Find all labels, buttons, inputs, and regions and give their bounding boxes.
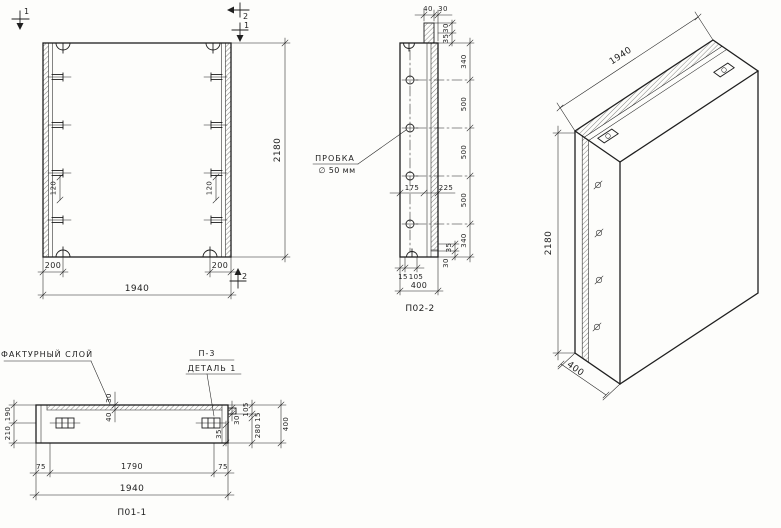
dim-bottom-total: 400 xyxy=(411,281,427,290)
right-chain-dim-2: 280 xyxy=(254,424,262,439)
bottom-small-dim-1: 30 xyxy=(442,258,450,268)
lifting-loops xyxy=(404,43,418,257)
drawing-canvas: 120 120 200 200 1940 xyxy=(0,0,781,528)
plug-callout-text-2: ∅ 50 мм xyxy=(318,166,355,175)
bottom-chain-dim-1: 1790 xyxy=(121,462,143,471)
right-chain-dim-1: 15 xyxy=(254,412,262,422)
top-small-dim-1: 35 xyxy=(442,34,450,44)
dim-bottom-total: 1940 xyxy=(120,484,145,494)
section-mark-top-left: 1 xyxy=(12,7,30,30)
front-view: 120 120 200 200 1940 xyxy=(12,3,290,299)
dim-height: 2180 xyxy=(544,231,554,256)
dim-layer-top: 30 xyxy=(105,393,113,403)
section-mark-label: 1 xyxy=(244,21,250,30)
facing-layer-hatch xyxy=(431,43,438,250)
dim-detail-b: 35 xyxy=(215,429,223,439)
iso-width-dim: 400 xyxy=(558,353,620,400)
bottom-chain-dim-2: 75 xyxy=(218,463,228,471)
s22-bottom-dims: 15 105 400 xyxy=(395,257,443,295)
s22-top-small-dims: 30 35 xyxy=(434,20,474,46)
section-1-1-label: П01-1 xyxy=(117,508,146,518)
dim-length: 1940 xyxy=(608,45,634,67)
front-height-dim: 2180 xyxy=(231,38,290,262)
right-chain-dim-2: 500 xyxy=(460,145,468,160)
iso-height-dim: 2180 xyxy=(544,126,575,360)
top-small-dim-0: 30 xyxy=(442,23,450,33)
dim-end-right: 200 xyxy=(212,261,228,270)
isometric-view: 1940 2180 400 xyxy=(544,12,758,400)
bottom-small-dim-0: 35 xyxy=(445,243,453,253)
tongue-hatch xyxy=(424,23,434,43)
section-mark-label: 2 xyxy=(242,272,248,281)
lifting-loops xyxy=(56,43,220,257)
section-2-2-view: ПРОБКА ∅ 50 мм 40 30 30 35 xyxy=(313,5,474,314)
dim-width: 400 xyxy=(565,360,586,379)
right-chain-dim-0: 340 xyxy=(460,54,468,69)
section-mark-top-right-outer: 2 xyxy=(227,3,249,21)
end-face-groove-hatch xyxy=(582,136,588,363)
right-chain-dim-4: 340 xyxy=(460,233,468,248)
s11-left-chain: 190 210 xyxy=(4,400,36,448)
right-chain-dim-3: 500 xyxy=(460,193,468,208)
anchor-symbols xyxy=(48,73,227,224)
section-mark-top-right-inner: 1 xyxy=(232,21,250,42)
facing-layer-hatch xyxy=(47,405,222,410)
iso-length-dim: 1940 xyxy=(557,12,713,131)
dim-width-total: 1940 xyxy=(125,284,150,294)
plug-callout-leader xyxy=(358,130,406,164)
slab-outline xyxy=(575,40,758,384)
front-bottom-dims: 200 200 1940 xyxy=(38,257,236,299)
top-face-facing-hatch xyxy=(575,40,722,137)
dim-bottom-b: 105 xyxy=(409,273,424,281)
dim-detail-a: 30 xyxy=(233,415,241,425)
dim-mid-right: 225 xyxy=(439,184,454,192)
left-chain-dim-1: 210 xyxy=(4,426,12,441)
dim-mid-left: 175 xyxy=(405,184,420,192)
front-anchor-dim-left: 120 xyxy=(50,174,64,203)
layer-callout-text: ФАКТУРНЫЙ СЛОЙ xyxy=(1,348,93,359)
dim-bottom-a: 15 xyxy=(398,273,408,281)
dim-anchor-left: 120 xyxy=(50,181,58,196)
section-mark-label: 1 xyxy=(24,7,30,16)
embed-left xyxy=(50,418,80,428)
top-face-groove-line xyxy=(589,50,727,141)
section-mark-label: 2 xyxy=(243,12,249,21)
left-chain-dim-0: 190 xyxy=(4,407,12,422)
dim-right-total: 400 xyxy=(282,417,290,432)
section-1-1-view: ФАКТУРНЫЙ СЛОЙ П-3 ДЕТАЛЬ 1 30 40 190 xyxy=(1,348,290,518)
plug-marks xyxy=(593,181,603,331)
facing-layer-hatch-right xyxy=(226,43,232,257)
detail-callout-text-1: П-3 xyxy=(199,349,216,358)
dim-top-tongue: 40 xyxy=(423,5,433,13)
detail-callout-text-2: ДЕТАЛЬ 1 xyxy=(188,364,237,373)
section-outline xyxy=(36,405,228,443)
facing-layer-lines xyxy=(49,43,226,257)
front-anchor-dim-right: 120 xyxy=(206,174,220,203)
section-mark-bottom-right: 2 xyxy=(230,268,248,288)
dim-anchor-right: 120 xyxy=(206,181,214,196)
plug-callout: ПРОБКА ∅ 50 мм xyxy=(313,130,406,175)
plug-callout-text-1: ПРОБКА xyxy=(315,154,355,163)
panel-outline xyxy=(43,43,231,257)
embed-right xyxy=(196,418,226,428)
facing-layer-hatch-left xyxy=(43,43,49,257)
section-2-2-label: П02-2 xyxy=(405,304,434,314)
s11-bottom-dims: 75 1790 75 1940 xyxy=(30,443,234,500)
dim-end-left: 200 xyxy=(45,261,61,270)
layer-callout: ФАКТУРНЫЙ СЛОЙ xyxy=(1,348,110,404)
dim-top-layer: 30 xyxy=(438,5,448,13)
dim-height: 2180 xyxy=(273,138,283,163)
s22-right-chain: 340 500 500 500 340 xyxy=(416,38,474,262)
bottom-chain-dim-0: 75 xyxy=(36,463,46,471)
dim-layer-bottom: 40 xyxy=(105,412,113,422)
right-chain-dim-0: 105 xyxy=(242,402,250,417)
right-chain-dim-1: 500 xyxy=(460,97,468,112)
